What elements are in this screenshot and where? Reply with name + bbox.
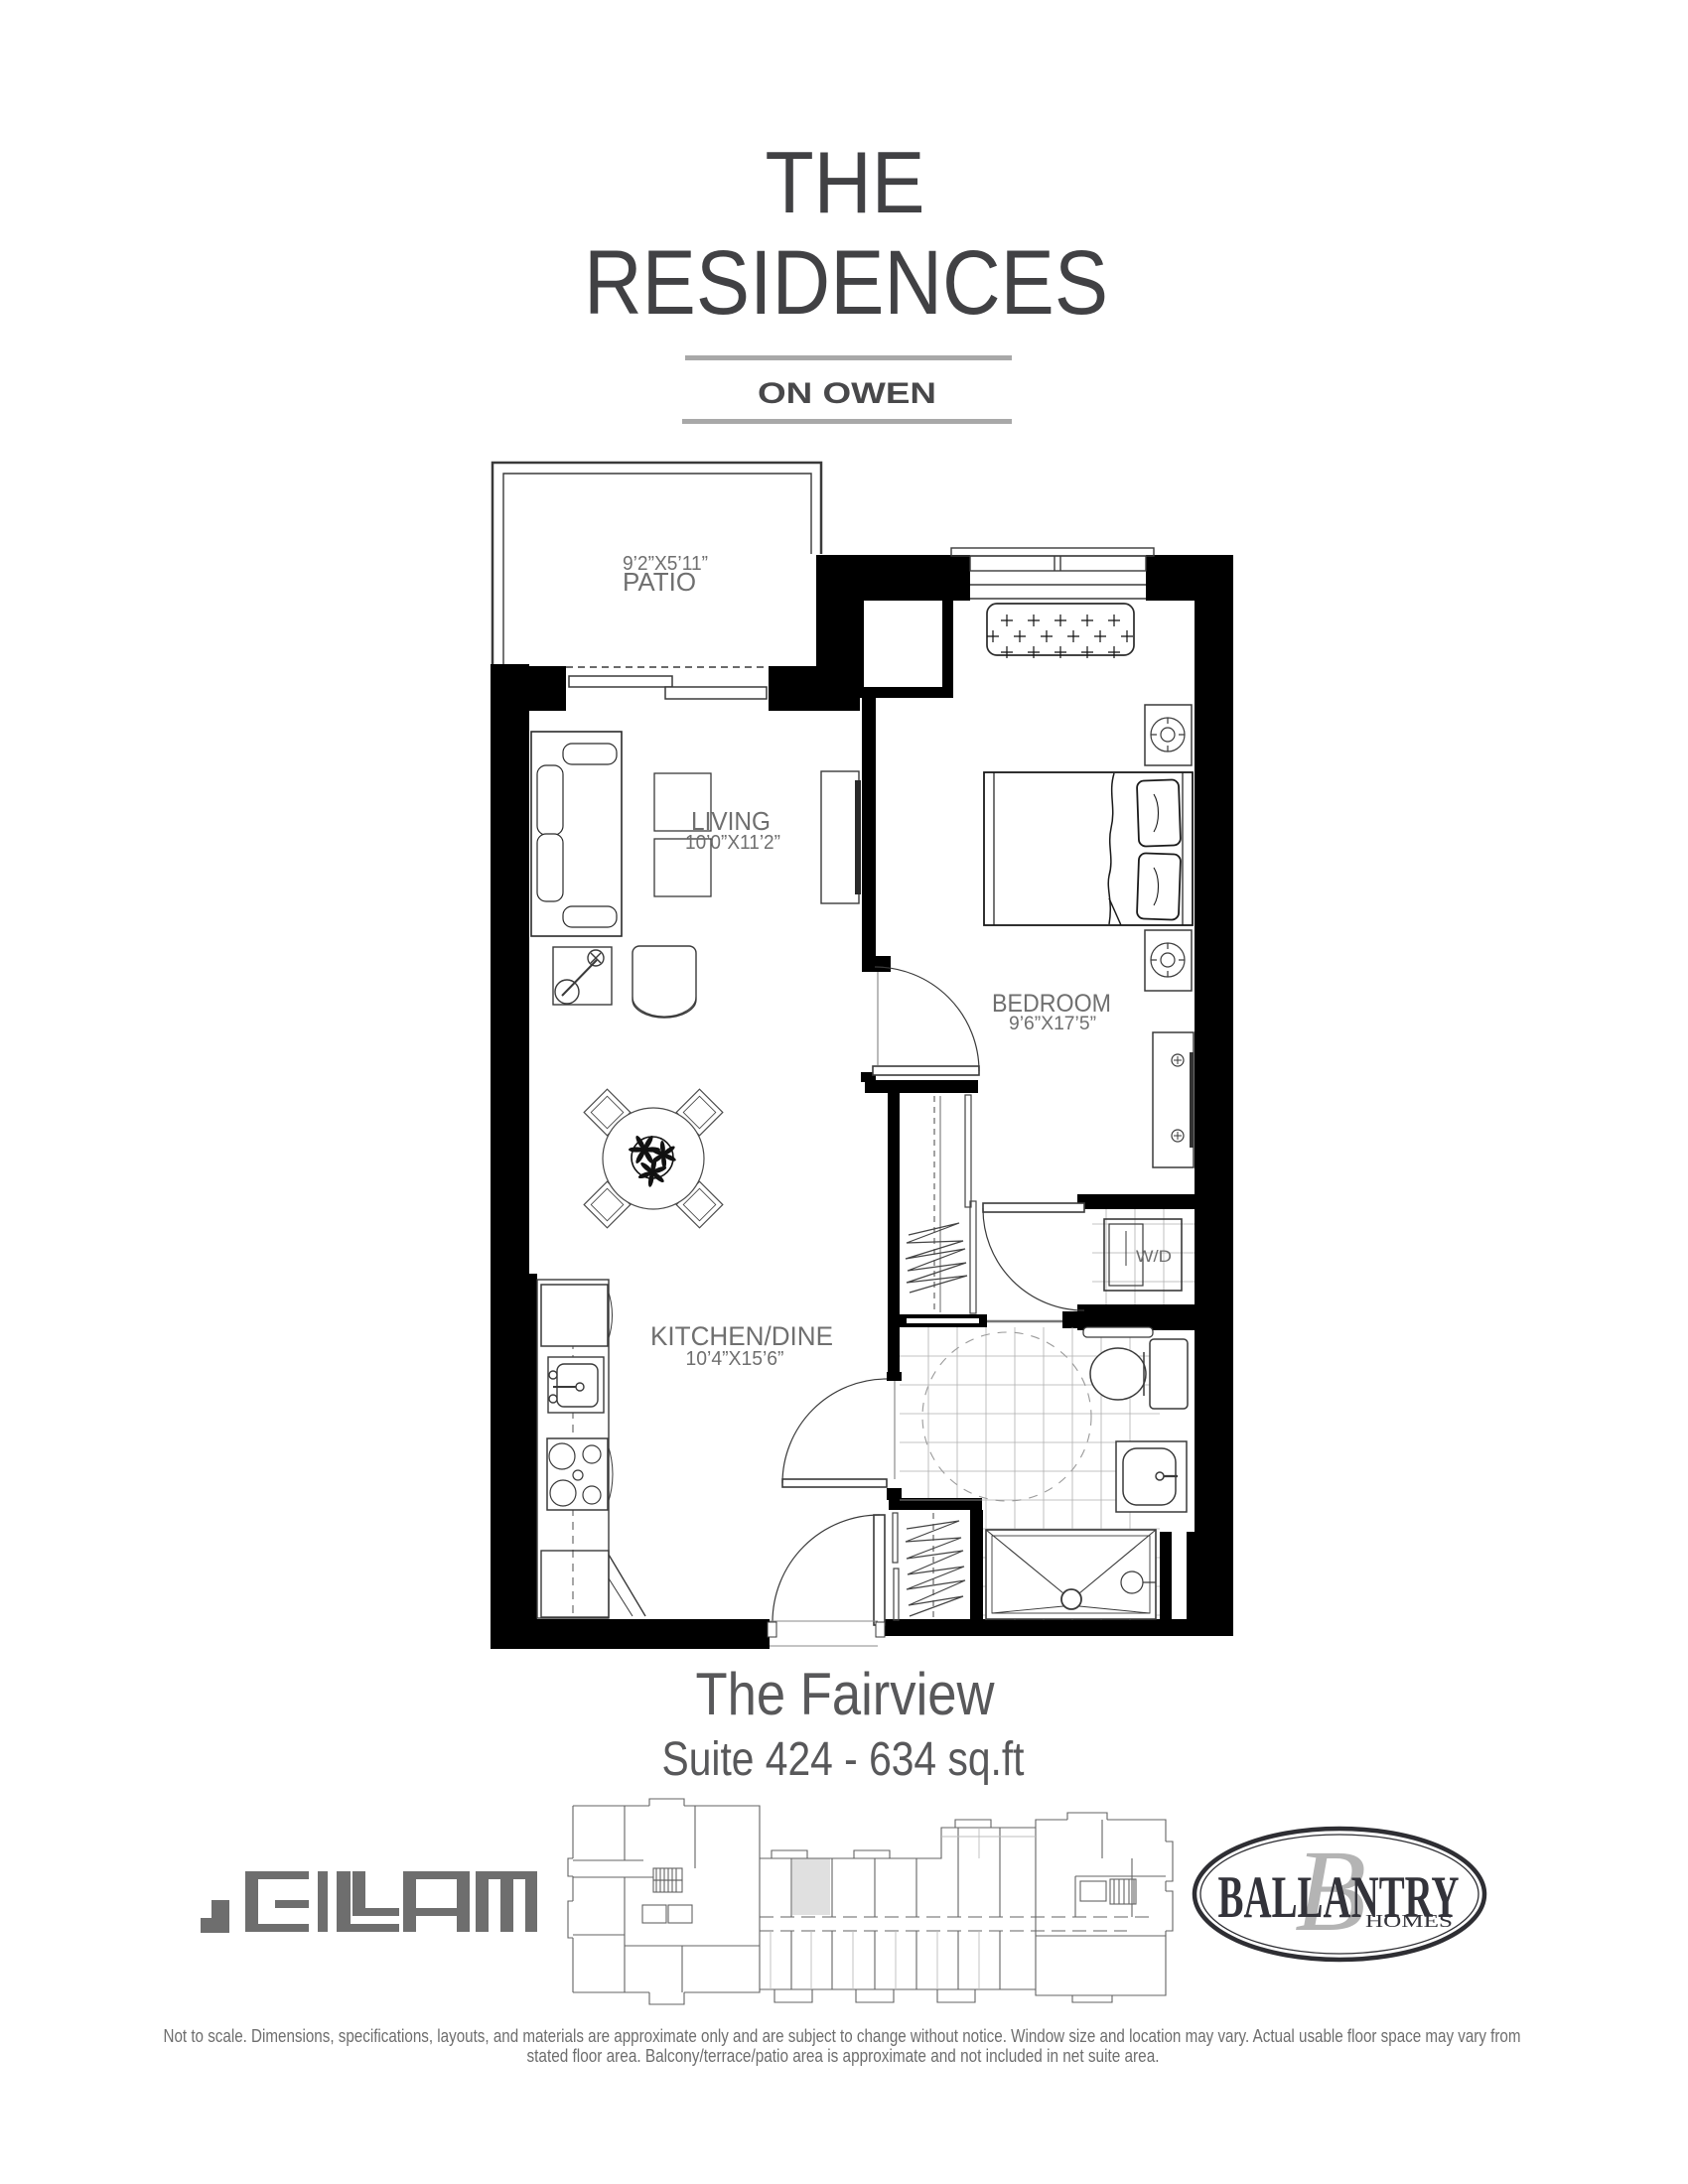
svg-text:10’4”X15’6”: 10’4”X15’6” — [686, 1348, 784, 1370]
svg-text:Not to scale. Dimensions, spec: Not to scale. Dimensions, specifications… — [164, 2025, 1521, 2046]
svg-text:RESIDENCES: RESIDENCES — [584, 232, 1108, 334]
svg-text:KITCHEN/DINE: KITCHEN/DINE — [650, 1321, 833, 1351]
svg-text:PATIO: PATIO — [623, 567, 696, 597]
svg-text:HOMES: HOMES — [1365, 1911, 1453, 1931]
svg-text:Suite 424 - 634 sq.ft: Suite 424 - 634 sq.ft — [662, 1733, 1025, 1786]
svg-text:ON OWEN: ON OWEN — [758, 377, 936, 410]
svg-text:The Fairview: The Fairview — [696, 1661, 996, 1727]
svg-text:10’0”X11’2”: 10’0”X11’2” — [685, 832, 780, 854]
svg-text:9’6”X17’5”: 9’6”X17’5” — [1009, 1014, 1096, 1034]
svg-text:THE: THE — [766, 133, 925, 231]
svg-text:stated floor area. Balcony/ter: stated floor area. Balcony/terrace/patio… — [527, 2045, 1160, 2066]
svg-text:W/D: W/D — [1136, 1247, 1172, 1266]
